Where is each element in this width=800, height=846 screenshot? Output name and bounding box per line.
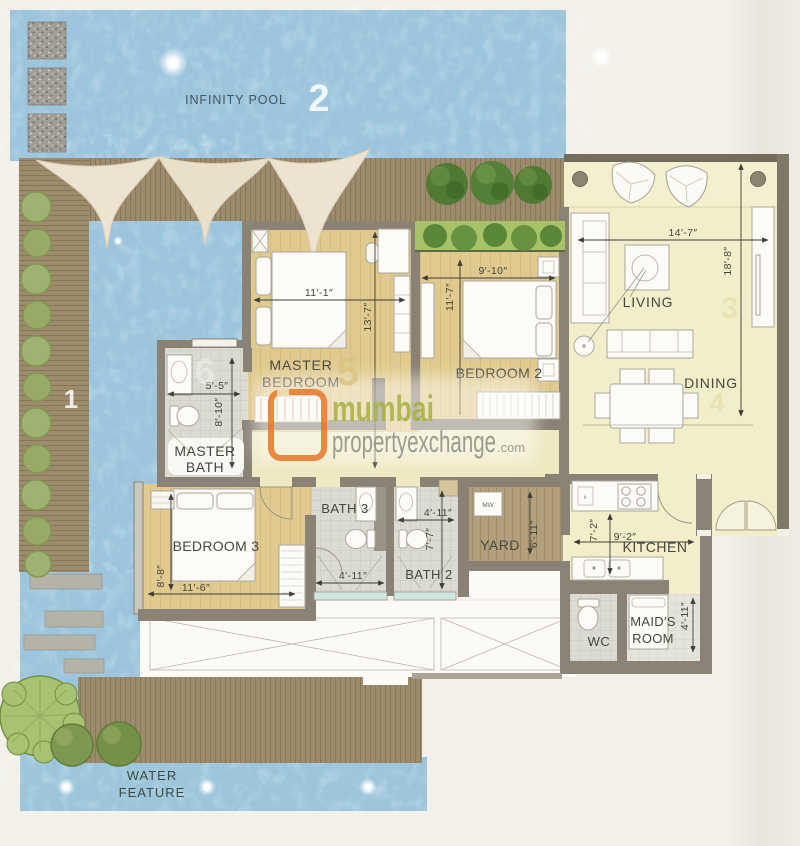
svg-text:11′-6″: 11′-6″ <box>182 582 210 594</box>
svg-text:mumbai: mumbai <box>332 388 434 429</box>
svg-text:ROOM: ROOM <box>632 631 674 646</box>
svg-text:b: b <box>584 495 587 501</box>
svg-text:14′-7″: 14′-7″ <box>668 227 697 239</box>
svg-text:9′-10″: 9′-10″ <box>478 265 507 277</box>
svg-text:8′-8″: 8′-8″ <box>155 565 167 588</box>
svg-text:BATH: BATH <box>186 459 224 475</box>
svg-text:1: 1 <box>64 384 78 414</box>
svg-text:propertyexchange: propertyexchange <box>332 424 496 459</box>
svg-text:WC: WC <box>588 634 611 649</box>
svg-text:WATER: WATER <box>127 768 178 783</box>
svg-text:13′-7″: 13′-7″ <box>362 302 374 331</box>
svg-text:6: 6 <box>195 351 215 392</box>
svg-text:4: 4 <box>709 388 724 418</box>
svg-text:4′-11″: 4′-11″ <box>424 507 452 519</box>
svg-text:BATH 3: BATH 3 <box>321 501 369 516</box>
svg-text:MAID′S: MAID′S <box>630 614 675 629</box>
svg-text:MW: MW <box>482 502 494 509</box>
svg-text:INFINITY POOL: INFINITY POOL <box>185 93 287 107</box>
svg-text:11′-7″: 11′-7″ <box>444 283 456 311</box>
svg-text:2: 2 <box>308 78 329 120</box>
svg-text:FEATURE: FEATURE <box>119 785 186 800</box>
svg-text:MASTER: MASTER <box>269 357 332 373</box>
svg-text:KITCHEN: KITCHEN <box>623 539 688 555</box>
svg-text:5: 5 <box>337 350 359 394</box>
svg-text:4′-11″: 4′-11″ <box>339 570 367 582</box>
svg-text:BATH 2: BATH 2 <box>405 567 453 582</box>
svg-text:MASTER: MASTER <box>174 443 235 459</box>
svg-text:3: 3 <box>722 292 739 325</box>
svg-text:6′-11″: 6′-11″ <box>528 520 540 548</box>
svg-text:7′-7″: 7′-7″ <box>424 528 436 551</box>
svg-text:18′-8″: 18′-8″ <box>722 246 734 275</box>
svg-text:8′-10″: 8′-10″ <box>213 397 225 426</box>
svg-text:4′-11″: 4′-11″ <box>679 602 691 630</box>
svg-text:.com: .com <box>497 440 525 455</box>
svg-text:YARD: YARD <box>480 537 520 553</box>
svg-text:7′-2″: 7′-2″ <box>588 519 600 542</box>
svg-text:BEDROOM 3: BEDROOM 3 <box>173 538 260 554</box>
svg-text:11′-1″: 11′-1″ <box>305 287 333 299</box>
